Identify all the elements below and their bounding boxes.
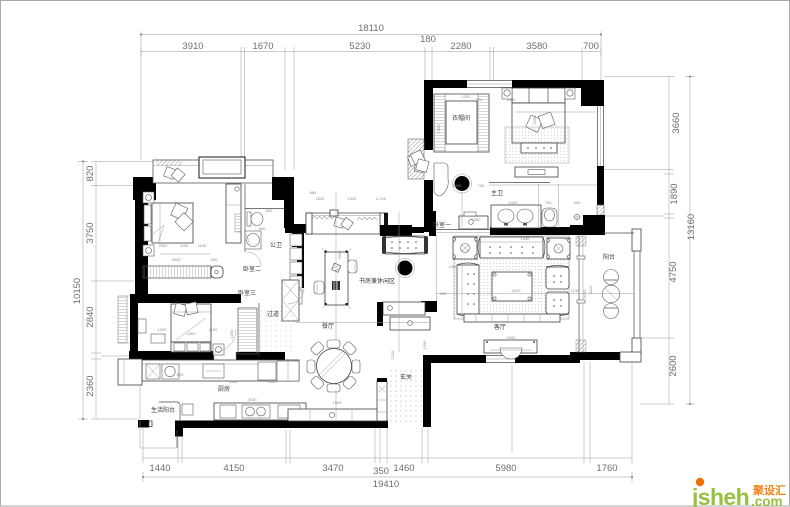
svg-text:500: 500: [476, 97, 483, 102]
svg-text:2280: 2280: [450, 41, 471, 52]
svg-text:2200: 2200: [532, 115, 537, 125]
svg-text:13160: 13160: [686, 214, 697, 240]
svg-text:卧室一: 卧室一: [433, 221, 451, 229]
svg-text:2640: 2640: [172, 257, 182, 262]
svg-text:jsheh: jsheh: [691, 484, 749, 507]
svg-text:玄关: 玄关: [400, 373, 412, 381]
svg-text:1500: 1500: [449, 264, 459, 269]
svg-text:1300: 1300: [187, 331, 197, 336]
svg-text:4110: 4110: [588, 285, 593, 294]
svg-text:790: 790: [545, 200, 552, 205]
svg-text:1100: 1100: [209, 327, 218, 332]
svg-text:3580: 3580: [526, 41, 547, 52]
svg-text:690: 690: [259, 226, 266, 231]
svg-text:820: 820: [85, 166, 96, 182]
svg-text:19410: 19410: [373, 479, 399, 490]
svg-text:1500: 1500: [333, 400, 343, 405]
svg-text:1760: 1760: [596, 463, 617, 474]
svg-text:4750: 4750: [668, 261, 679, 282]
svg-text:1430: 1430: [521, 236, 531, 241]
svg-text:600: 600: [177, 372, 184, 377]
svg-text:1200: 1200: [462, 94, 472, 99]
svg-text:1200: 1200: [229, 329, 234, 339]
svg-text:730: 730: [478, 183, 485, 188]
svg-text:3660: 3660: [671, 112, 682, 133]
svg-text:1440: 1440: [149, 463, 170, 474]
svg-text:1400: 1400: [507, 97, 517, 102]
svg-text:2110: 2110: [390, 350, 395, 359]
svg-text:3910: 3910: [182, 41, 203, 52]
svg-text:客厅: 客厅: [494, 323, 506, 331]
svg-text:1640: 1640: [316, 196, 326, 201]
svg-text:1670: 1670: [252, 41, 273, 52]
svg-text:1000: 1000: [453, 183, 463, 188]
svg-text:公卫: 公卫: [270, 242, 282, 249]
svg-text:600: 600: [266, 208, 273, 213]
svg-text:1000: 1000: [472, 217, 482, 222]
svg-text:2600: 2600: [337, 250, 342, 260]
svg-text:5980: 5980: [495, 463, 516, 474]
svg-text:1890: 1890: [669, 183, 680, 204]
svg-text:700: 700: [583, 41, 599, 52]
svg-text:180: 180: [420, 34, 436, 45]
svg-text:5230: 5230: [349, 41, 370, 52]
svg-text:书房兼休闲区: 书房兼休闲区: [359, 277, 395, 285]
svg-text:1200: 1200: [158, 327, 168, 332]
svg-text:2360: 2360: [85, 375, 96, 396]
svg-text:940: 940: [440, 291, 447, 296]
svg-text:1200: 1200: [422, 340, 427, 350]
svg-text:2510: 2510: [248, 397, 258, 402]
svg-text:1040: 1040: [348, 196, 358, 201]
svg-text:860: 860: [310, 190, 317, 195]
svg-text:350: 350: [373, 466, 389, 477]
svg-text:2600: 2600: [668, 355, 679, 376]
svg-text:厨房: 厨房: [218, 385, 230, 393]
svg-text:10150: 10150: [72, 278, 83, 304]
svg-text:3470: 3470: [322, 463, 343, 474]
svg-text:衣帽间: 衣帽间: [452, 114, 470, 122]
svg-text:卧室三: 卧室三: [238, 289, 256, 297]
svg-text:.com: .com: [751, 494, 783, 507]
svg-text:餐厅: 餐厅: [322, 322, 334, 330]
svg-text:4420: 4420: [512, 288, 522, 293]
svg-text:2300: 2300: [507, 335, 517, 340]
svg-text:18110: 18110: [358, 23, 384, 34]
svg-text:2840: 2840: [85, 306, 96, 327]
svg-text:960: 960: [564, 236, 571, 241]
svg-text:1119: 1119: [180, 243, 189, 248]
svg-text:1460: 1460: [393, 463, 414, 474]
svg-text:2000: 2000: [159, 243, 169, 248]
svg-text:4110: 4110: [582, 289, 587, 298]
svg-text:1200: 1200: [436, 124, 441, 134]
svg-text:1430: 1430: [509, 200, 519, 205]
svg-text:4150: 4150: [223, 463, 244, 474]
svg-text:阳台: 阳台: [603, 253, 615, 261]
svg-text:1210: 1210: [571, 288, 581, 293]
svg-text:主卫: 主卫: [491, 189, 503, 197]
svg-text:生活阳台: 生活阳台: [151, 406, 175, 414]
svg-text:1300: 1300: [268, 379, 278, 384]
svg-text:2930: 2930: [229, 379, 239, 384]
svg-text:卧室二: 卧室二: [243, 265, 261, 273]
svg-text:1100: 1100: [198, 243, 207, 248]
svg-text:2-100: 2-100: [376, 196, 387, 201]
svg-text:300: 300: [211, 257, 218, 262]
svg-text:过道: 过道: [267, 310, 279, 318]
svg-text:3750: 3750: [85, 222, 96, 243]
svg-text:900: 900: [574, 200, 581, 205]
